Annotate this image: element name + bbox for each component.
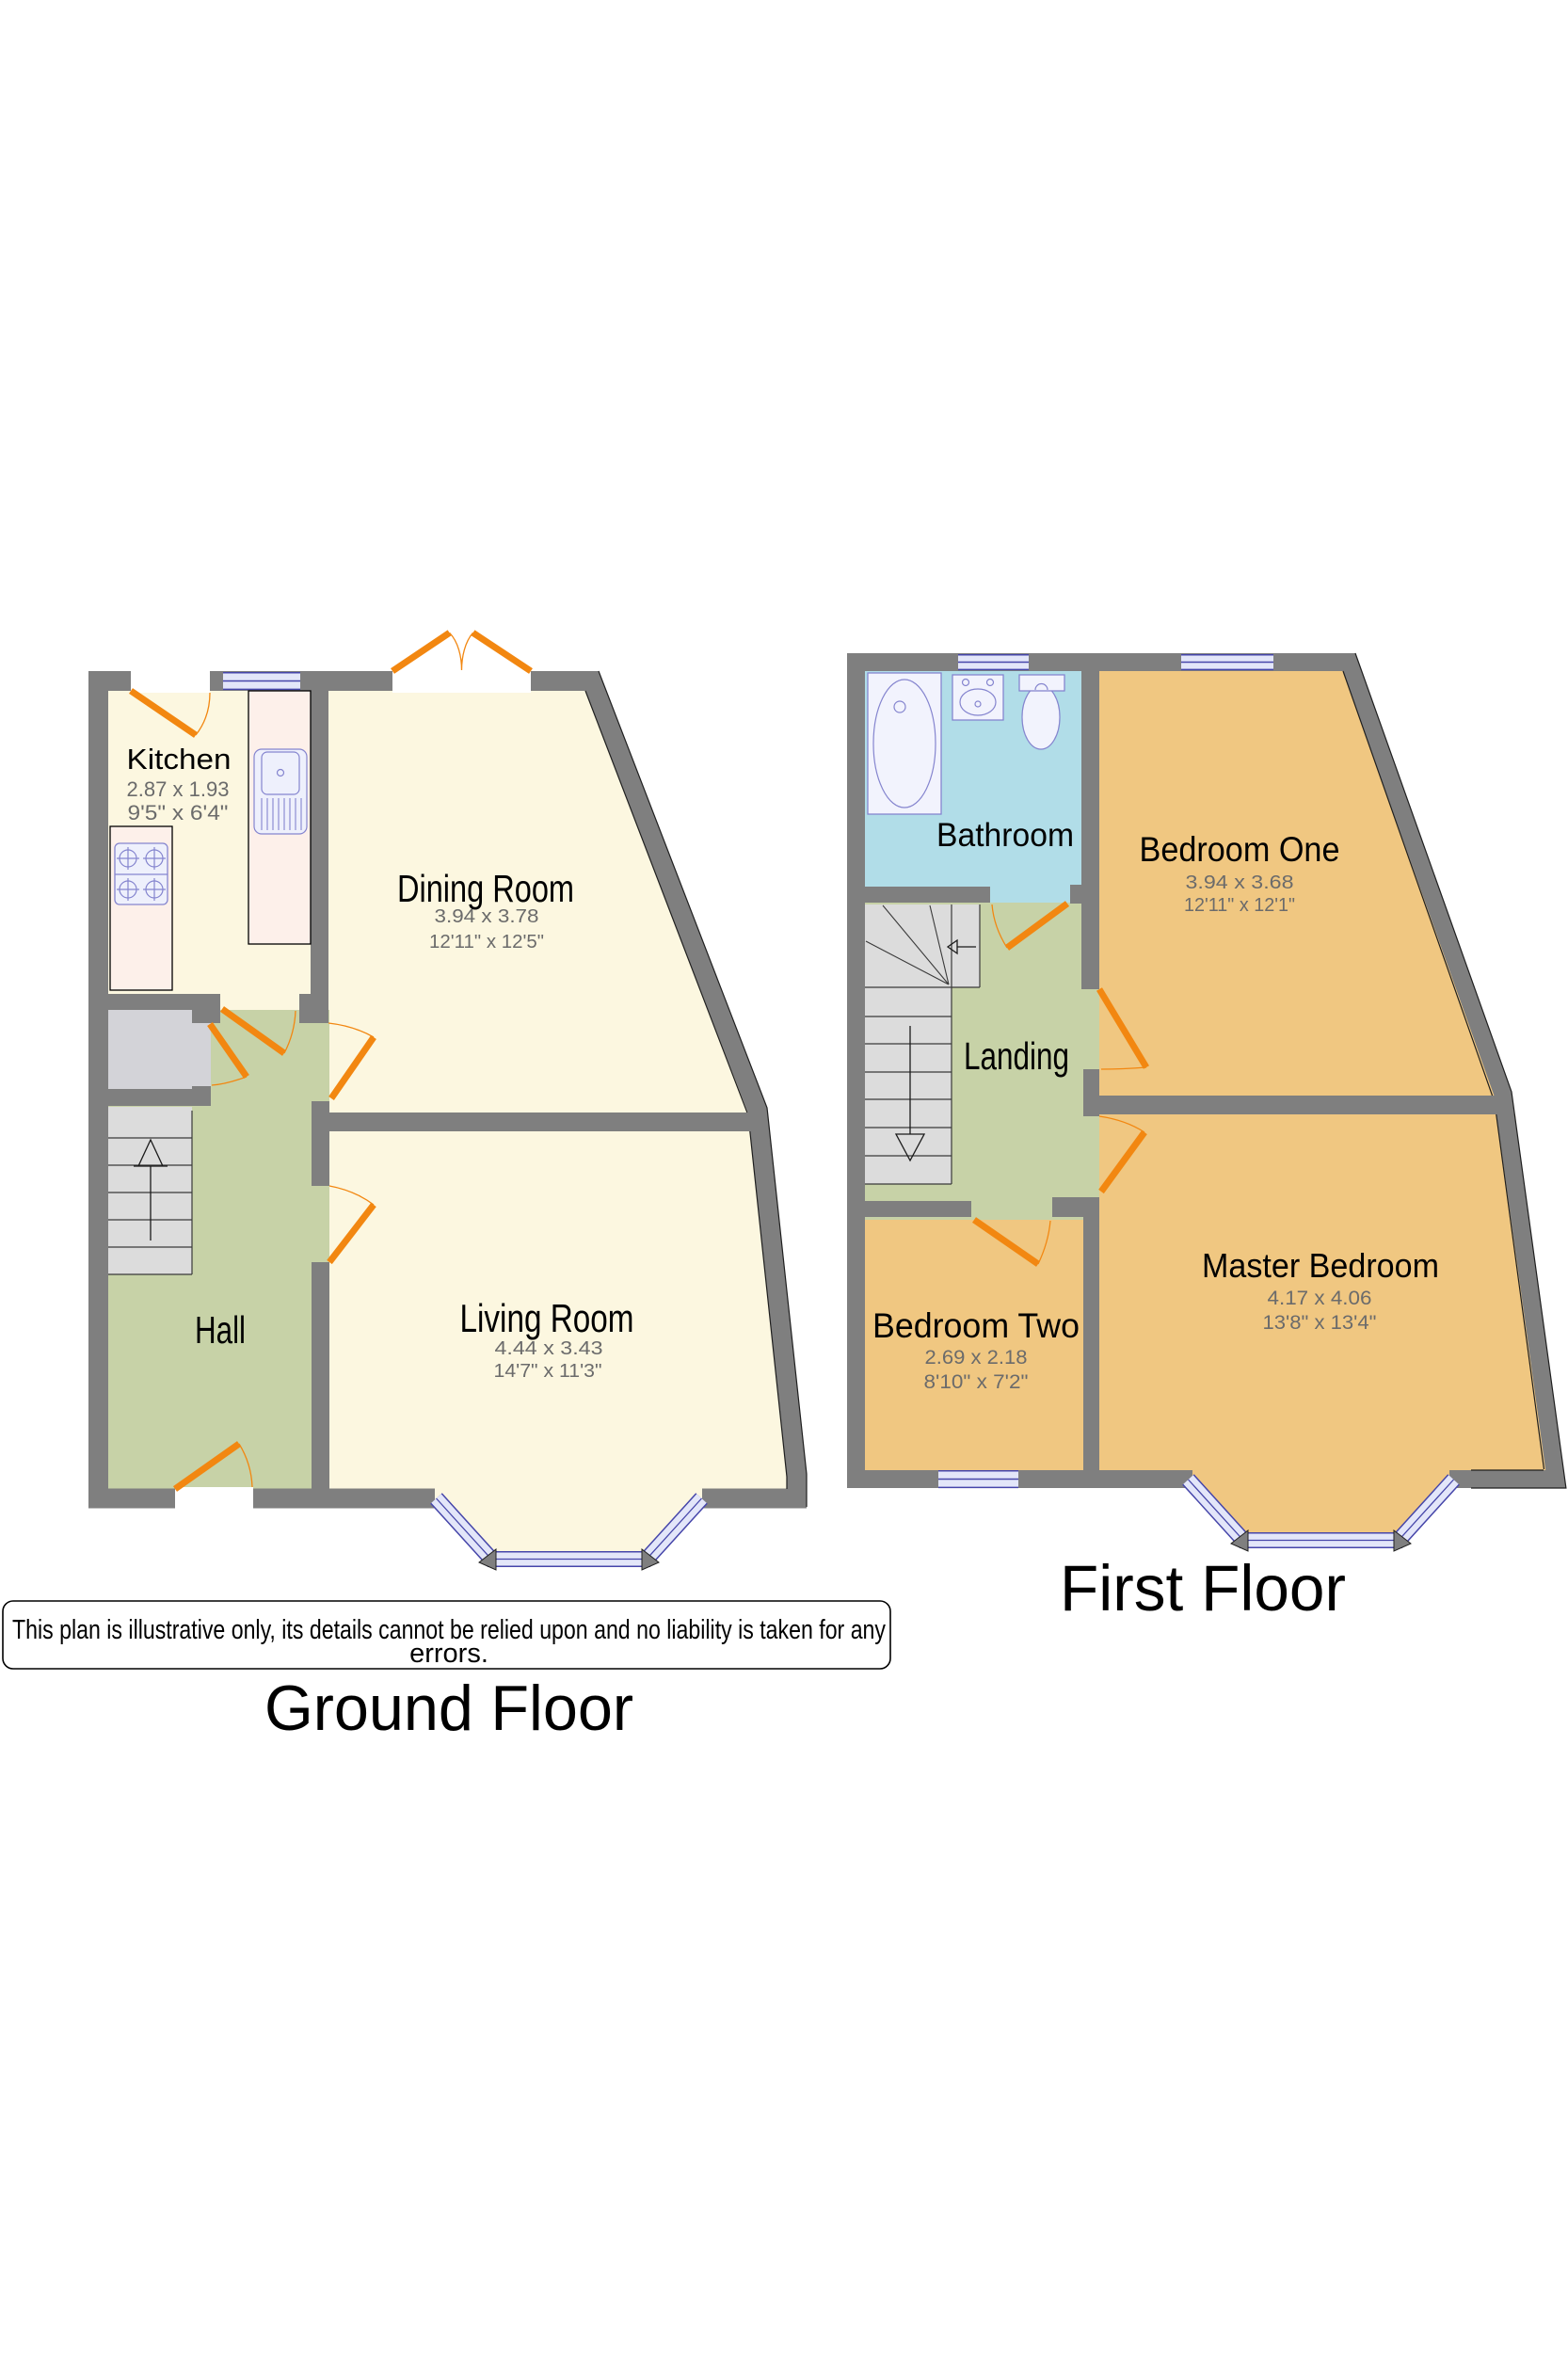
svg-text:12'11" x 12'5": 12'11" x 12'5" — [429, 932, 544, 952]
svg-text:First Floor: First Floor — [1060, 1552, 1346, 1625]
svg-text:errors.: errors. — [409, 1639, 488, 1669]
svg-text:Kitchen: Kitchen — [127, 743, 232, 776]
svg-text:Bedroom Two: Bedroom Two — [872, 1306, 1080, 1345]
svg-text:Landing: Landing — [964, 1034, 1069, 1078]
svg-text:Hall: Hall — [195, 1308, 246, 1352]
svg-text:Living Room: Living Room — [460, 1296, 634, 1340]
svg-text:12'11" x 12'1": 12'11" x 12'1" — [1184, 895, 1295, 916]
svg-text:Master Bedroom: Master Bedroom — [1202, 1246, 1439, 1285]
svg-text:8'10" x 7'2": 8'10" x 7'2" — [924, 1371, 1029, 1393]
svg-text:9'5" x 6'4": 9'5" x 6'4" — [128, 801, 229, 824]
svg-text:4.17 x 4.06: 4.17 x 4.06 — [1268, 1288, 1372, 1309]
svg-text:13'8" x 13'4": 13'8" x 13'4" — [1263, 1312, 1377, 1334]
svg-text:3.94 x 3.78: 3.94 x 3.78 — [435, 906, 539, 927]
svg-text:Ground Floor: Ground Floor — [264, 1673, 633, 1744]
svg-text:2.69 x 2.18: 2.69 x 2.18 — [925, 1347, 1028, 1369]
svg-text:Bathroom: Bathroom — [936, 817, 1074, 854]
svg-text:4.44 x 3.43: 4.44 x 3.43 — [495, 1338, 603, 1359]
svg-text:Bedroom One: Bedroom One — [1140, 830, 1340, 869]
svg-text:14'7" x 11'3": 14'7" x 11'3" — [494, 1361, 602, 1382]
svg-text:3.94 x 3.68: 3.94 x 3.68 — [1186, 872, 1294, 893]
svg-text:2.87 x 1.93: 2.87 x 1.93 — [127, 777, 230, 801]
svg-text:Dining Room: Dining Room — [397, 867, 574, 910]
